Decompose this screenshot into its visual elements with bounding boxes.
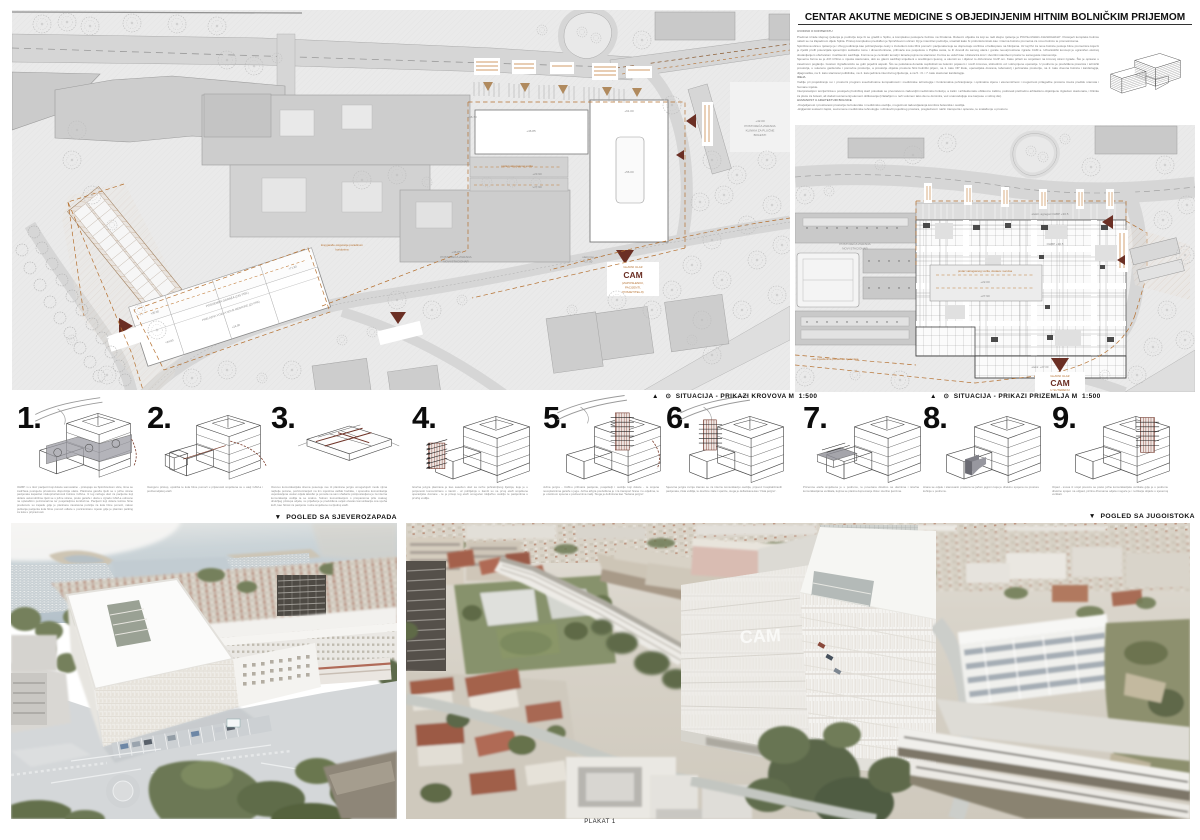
svg-text:CAM: CAM [1050,378,1069,388]
svg-text:(ZAPOSLENICI,: (ZAPOSLENICI, [622,281,644,285]
svg-text:prolaz vatrogasnog vozila, dos: prolaz vatrogasnog vozila, dostave i ser… [958,269,1013,273]
svg-text:GLAVNI ULAZ: GLAVNI ULAZ [623,265,642,269]
svg-text:PACIJENTI,: PACIJENTI, [625,286,641,290]
svg-text:+23.90: +23.90 [532,172,542,176]
svg-text:CAM: CAM [623,270,642,280]
svg-text:POSTOJEĆA ZGRADA: POSTOJEĆA ZGRADA [440,254,471,259]
svg-text:+22.00: +22.00 [980,280,990,284]
svg-text:POSJETITELJI): POSJETITELJI) [622,290,643,294]
svg-text:koridorima: koridorima [335,248,349,252]
svg-text:elektr. agregat OHBP +30.5: elektr. agregat OHBP +30.5 [1032,212,1069,216]
svg-text:+42.00: +42.00 [755,119,765,123]
svg-text:+46.70: +46.70 [467,115,477,119]
svg-text:prolaz vatrogasnog vozila: prolaz vatrogasnog vozila [501,164,533,168]
svg-text:POSTOJEĆA ZGRADA: POSTOJEĆA ZGRADA [839,241,870,246]
svg-text:+56.00: +56.00 [624,170,634,174]
svg-text:+61.00: +61.00 [624,109,634,113]
svg-text:KLINIKA ZA PLUĆNE: KLINIKA ZA PLUĆNE [746,128,775,133]
svg-text:elektr. +27.00: elektr. +27.00 [1032,365,1049,369]
svg-text:+27.90: +27.90 [980,294,990,298]
svg-text:ulazni trg: ulazni trg [582,255,594,259]
svg-text:NOVI STACIONAR: NOVI STACIONAR [443,260,469,264]
svg-text:CAM: CAM [739,625,781,647]
svg-text:OHBP +30.5: OHBP +30.5 [1047,242,1064,246]
svg-text:NOVI STACIONAR: NOVI STACIONAR [842,247,868,251]
svg-text:oko squatterima postavnim rije: oko squatterima postavnim riješenima [812,357,859,361]
svg-text:POSTOJEĆA ZGRADA: POSTOJEĆA ZGRADA [744,123,775,128]
svg-text:BOLESTI: BOLESTI [754,133,767,137]
svg-text:+27.00: +27.00 [584,260,593,264]
svg-text:kraj garaže osiguranje pozadin: kraj garaže osiguranje pozadinom [321,243,364,247]
svg-text:+46.85: +46.85 [526,129,536,133]
svg-text:+46.85: +46.85 [451,250,461,254]
